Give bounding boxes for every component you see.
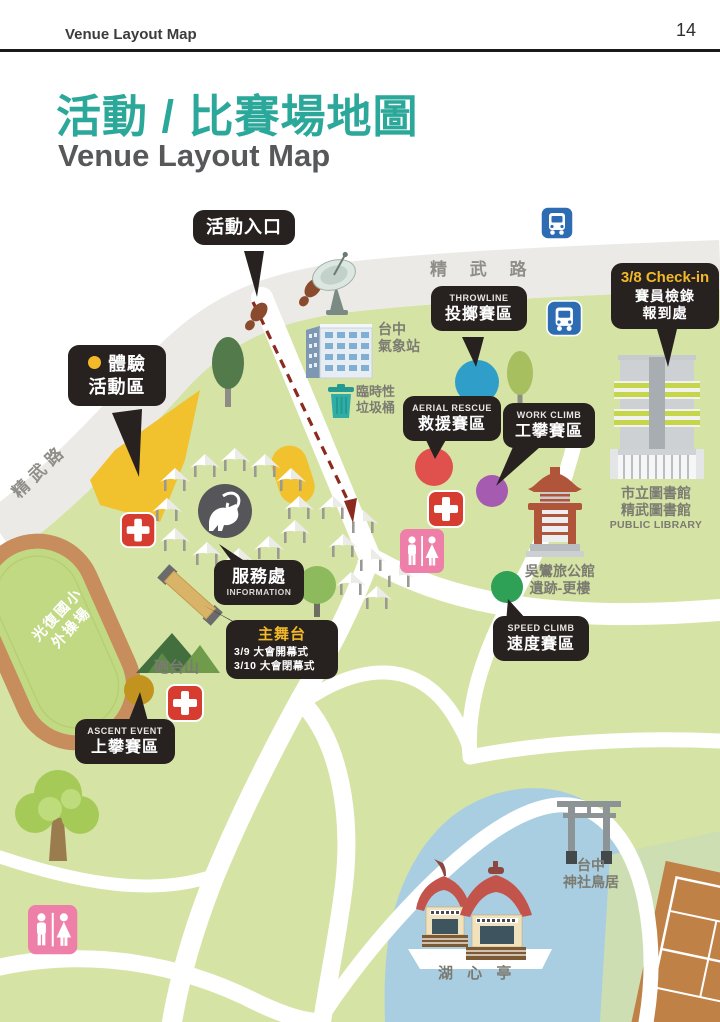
bubble-checkin: 3/8 Check-in 賽員檢錄 報到處: [611, 263, 719, 329]
first-aid-icon-hill: [167, 685, 203, 721]
goat-logo: [198, 484, 252, 538]
restroom-icon-southwest: [28, 905, 77, 954]
page-title: 活動 / 比賽場地圖: [56, 80, 419, 145]
bubble-event-entrance: 活動入口: [193, 210, 295, 245]
bubble-main-stage: 主舞台 3/9 大會開幕式 3/10 大會閉幕式: [226, 620, 338, 679]
weather-station-building: [306, 324, 372, 378]
guide-page: Venue Layout Map 14 活動 / 比賽場地圖 Venue Lay…: [0, 0, 720, 1022]
torii-label: 台中 神社鳥居: [548, 857, 634, 891]
pavilion-label: 湖 心 亭: [438, 965, 516, 983]
bubble-experience-area: 體驗 活動區: [68, 345, 166, 406]
header-doc-label: Venue Layout Map: [65, 26, 197, 43]
first-aid-icon-west: [121, 513, 155, 547]
bubble-information: 服務處 INFORMATION: [214, 560, 304, 605]
page-header: Venue Layout Map 14: [0, 0, 720, 52]
library-label: 市立圖書館 精武圖書館 PUBLIC LIBRARY: [602, 485, 710, 532]
bus-stop-icon-lower: [547, 301, 582, 336]
weather-station-label: 台中 氣象站: [378, 321, 420, 355]
bubble-speed-climb: SPEED CLIMB 速度賽區: [493, 616, 589, 661]
trash-label: 臨時性 垃圾桶: [356, 384, 395, 416]
wu-mansion-label: 吳鸞旅公館 遺跡-更樓: [510, 563, 610, 597]
bubble-ascent-event: ASCENT EVENT 上攀賽區: [75, 719, 175, 764]
bubble-throwline: THROWLINE 投擲賽區: [431, 286, 527, 331]
bubble-aerial-rescue: AERIAL RESCUE 救援賽區: [403, 396, 501, 441]
cannon-hill-label: 砲台山: [154, 659, 199, 677]
bus-stop-icon-top: [541, 207, 573, 239]
road-label-jingwu-top: 精 武 路: [430, 255, 535, 280]
first-aid-icon-center: [428, 491, 464, 527]
venue-map: 精 武 路 精武路 台中 氣象站 臨時性 垃圾桶 吳鸞旅公館 遺跡-更樓 市立圖…: [0, 195, 720, 1022]
bubble-work-climb: WORK CLIMB 工攀賽區: [503, 403, 595, 448]
work-climb-zone-marker: [476, 475, 508, 507]
page-subtitle: Venue Layout Map: [58, 138, 330, 174]
page-number: 14: [676, 20, 696, 41]
restroom-icon-center: [400, 529, 444, 573]
experience-dot-icon: [88, 356, 101, 369]
library-building: [610, 355, 704, 479]
